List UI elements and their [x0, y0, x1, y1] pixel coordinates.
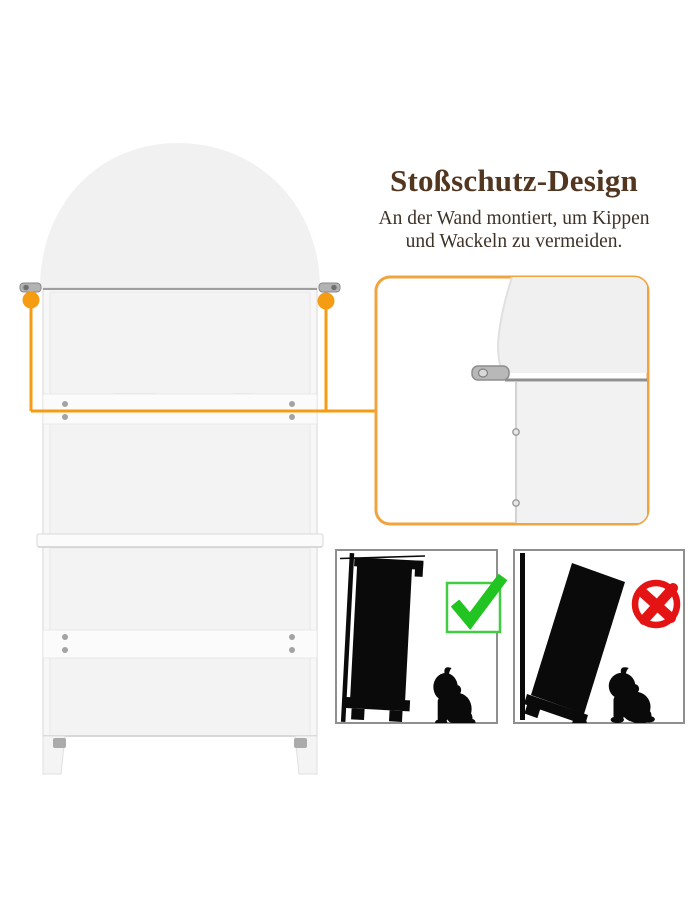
do-example-figure	[336, 550, 503, 727]
shelf-right-foot	[389, 710, 403, 722]
detail-side-panel	[516, 382, 647, 523]
bookshelf-arch-top	[40, 143, 320, 288]
connector-dot-right	[318, 293, 335, 310]
detail-screw-1	[513, 429, 519, 435]
cross-rail-1	[43, 394, 317, 424]
dont-example-figure	[514, 550, 684, 733]
bracket-detail-callout	[376, 277, 648, 524]
back-panel-1	[50, 292, 310, 394]
left-leg-brace	[53, 738, 66, 748]
right-wall-bracket	[319, 283, 340, 292]
illustration-scene	[0, 0, 690, 920]
middle-shelf-board	[37, 534, 323, 547]
detail-screw-2	[513, 500, 519, 506]
left-wall-bracket	[20, 283, 41, 292]
wall-line	[520, 553, 525, 720]
green-checkmark-icon	[447, 577, 503, 632]
connector-dot-left	[23, 292, 40, 309]
detail-arch	[498, 277, 647, 373]
bookshelf-back-view	[20, 143, 340, 774]
product-infographic: Stoßschutz-Design An der Wand montiert, …	[0, 0, 690, 920]
shelf-top-lip	[415, 560, 424, 576]
shelf-left-foot	[351, 708, 365, 720]
back-panel-3	[50, 548, 310, 630]
shelf-body	[350, 564, 412, 703]
right-leg-brace	[294, 738, 307, 748]
back-panel-2	[50, 424, 310, 534]
cross-rail-2	[43, 630, 317, 658]
back-panel-4	[50, 658, 310, 736]
detail-wall-bracket	[472, 366, 509, 380]
